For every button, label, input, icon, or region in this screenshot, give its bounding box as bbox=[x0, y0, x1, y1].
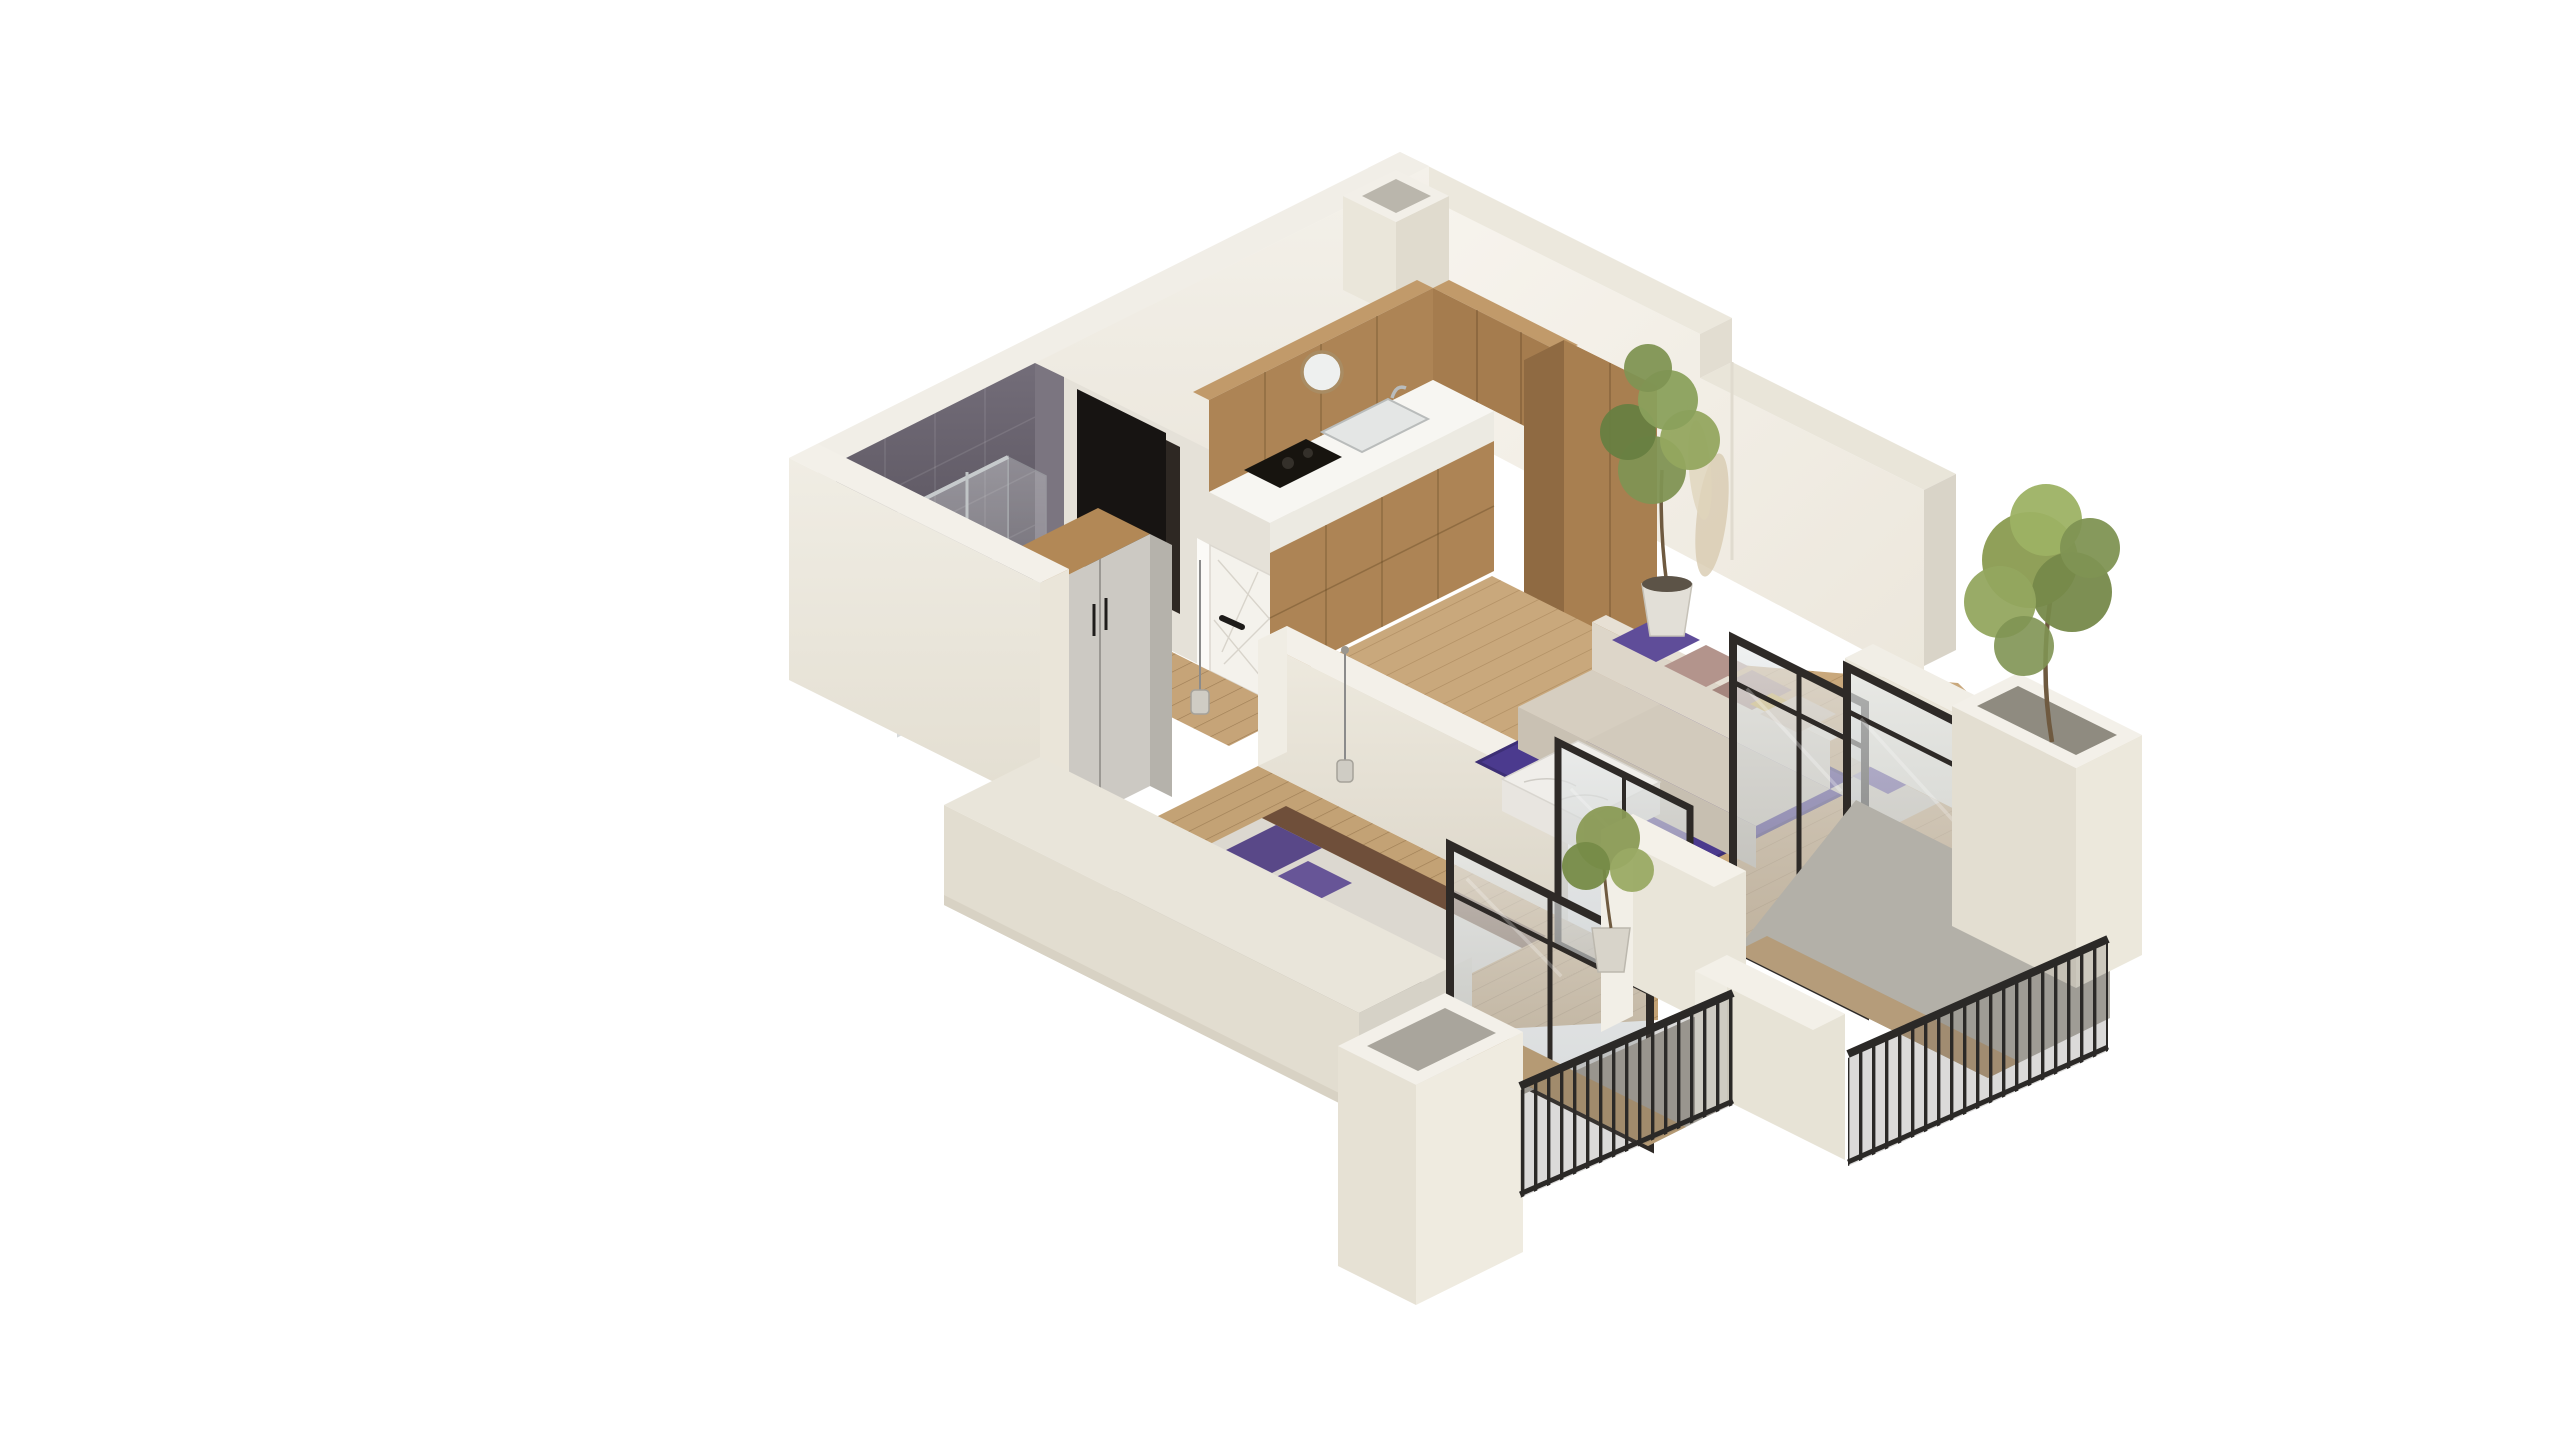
pendant-shade bbox=[1191, 690, 1209, 714]
plant-foliage bbox=[1610, 848, 1654, 892]
pendant-shade bbox=[1337, 760, 1353, 782]
tree-foliage bbox=[2060, 518, 2120, 578]
planter-box-south bbox=[1338, 993, 1523, 1305]
plant-pot-soil bbox=[1642, 576, 1692, 592]
pendant-canopy bbox=[1341, 646, 1349, 654]
tree-foliage bbox=[1994, 616, 2054, 676]
planter-sw-face bbox=[1338, 1046, 1416, 1305]
cooktop-burner bbox=[1282, 457, 1294, 469]
render-canvas: Isometric 3D cutaway render of a one-bed… bbox=[0, 0, 2560, 1440]
wardrobe-side-face bbox=[1150, 534, 1172, 797]
apartment-isometric-render: Isometric 3D cutaway render of a one-bed… bbox=[0, 0, 2560, 1440]
plant-pot bbox=[1592, 928, 1630, 972]
plant-foliage bbox=[1562, 842, 1610, 890]
kitchen-round-mirror bbox=[1302, 352, 1342, 392]
plant-foliage bbox=[1624, 344, 1672, 392]
entry-door-jamb bbox=[1197, 538, 1210, 671]
ne-wall-end-cap bbox=[1924, 474, 1956, 666]
partition-end-cap bbox=[1258, 626, 1287, 766]
cooktop-burner bbox=[1303, 448, 1313, 458]
